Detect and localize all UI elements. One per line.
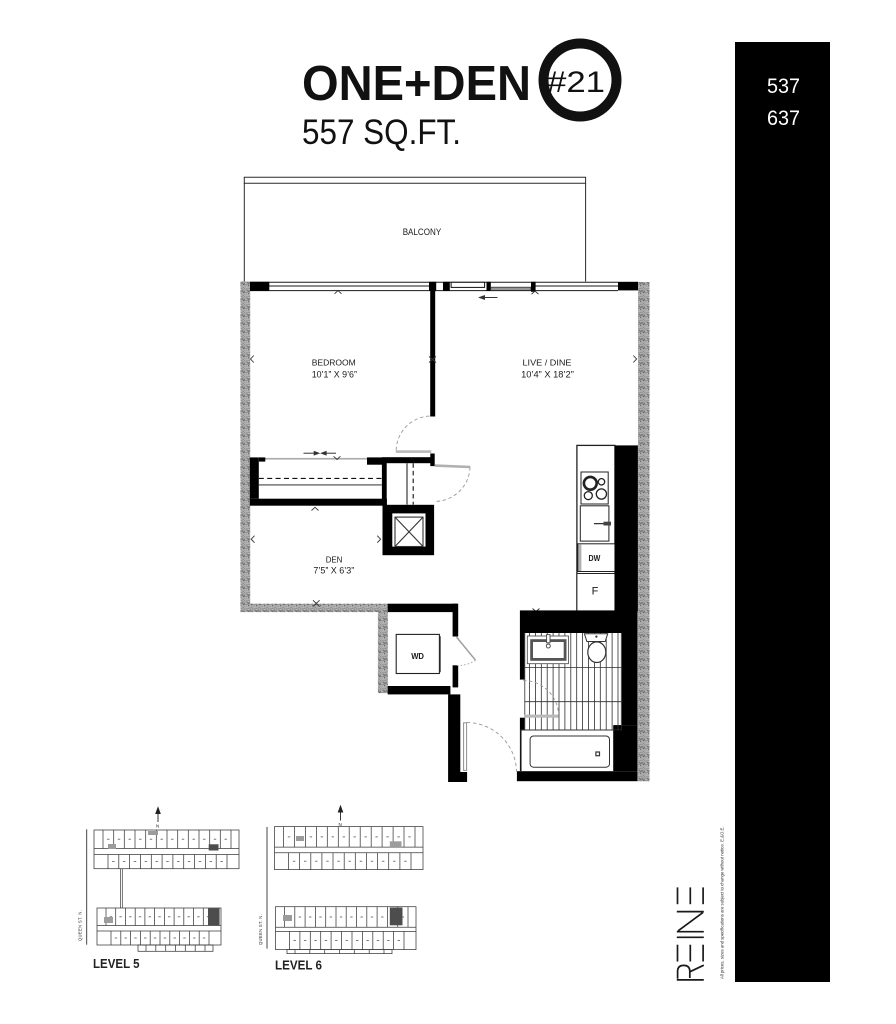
svg-text:All prices, sizes and specific: All prices, sizes and specifications are… <box>720 826 725 979</box>
svg-text:10’1” X 9’6”: 10’1” X 9’6” <box>312 370 357 380</box>
svg-text:7’5” X 6’3”: 7’5” X 6’3” <box>313 565 354 575</box>
svg-text:#21: #21 <box>547 66 605 99</box>
svg-text:QUEEN ST. N.: QUEEN ST. N. <box>78 910 83 941</box>
svg-text:LEVEL 5: LEVEL 5 <box>93 956 140 971</box>
svg-text:LIVE / DINE: LIVE / DINE <box>523 357 572 367</box>
svg-text:DEN: DEN <box>326 554 343 564</box>
svg-text:BEDROOM: BEDROOM <box>312 357 356 367</box>
svg-text:LEVEL 6: LEVEL 6 <box>275 958 322 973</box>
svg-text:QUEEN ST. N.: QUEEN ST. N. <box>258 914 263 945</box>
svg-text:637: 637 <box>767 106 800 130</box>
svg-text:DW: DW <box>589 553 602 563</box>
svg-text:10’4” X 18’2”: 10’4” X 18’2” <box>521 370 574 380</box>
svg-text:537: 537 <box>767 74 800 98</box>
svg-text:WD: WD <box>411 651 424 661</box>
svg-text:N: N <box>156 824 159 829</box>
svg-text:557 SQ.FT.: 557 SQ.FT. <box>302 113 461 152</box>
svg-text:F: F <box>592 585 599 597</box>
svg-text:BALCONY: BALCONY <box>403 227 442 237</box>
svg-text:ONE+DEN: ONE+DEN <box>302 57 531 111</box>
